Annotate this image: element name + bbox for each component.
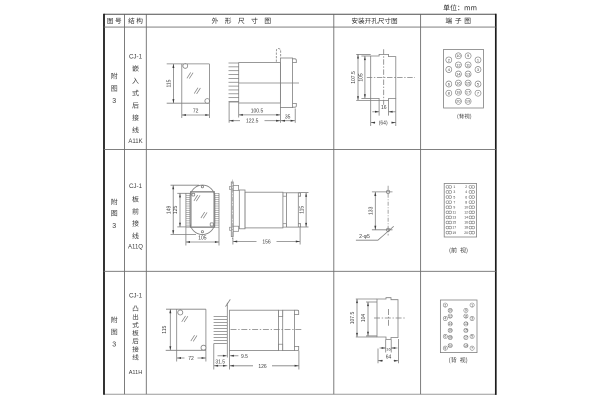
svg-text:20: 20 — [448, 344, 452, 348]
svg-text:12: 12 — [448, 314, 452, 318]
svg-text:3: 3 — [112, 98, 116, 105]
svg-text:72: 72 — [188, 356, 194, 362]
svg-text:12: 12 — [456, 62, 460, 67]
svg-text:13: 13 — [464, 322, 468, 326]
svg-text:13: 13 — [452, 216, 456, 220]
svg-text:3: 3 — [112, 341, 116, 348]
svg-text:CJ-1: CJ-1 — [129, 183, 143, 190]
svg-text:18: 18 — [448, 336, 452, 340]
svg-text:100.5: 100.5 — [251, 108, 264, 114]
svg-text:8: 8 — [465, 200, 467, 204]
svg-text:7: 7 — [477, 91, 479, 96]
svg-text:14: 14 — [448, 322, 452, 326]
svg-text:64: 64 — [386, 355, 392, 361]
svg-text:6: 6 — [448, 81, 450, 86]
svg-text:4: 4 — [444, 317, 446, 321]
svg-text:3: 3 — [112, 223, 116, 230]
svg-text:14: 14 — [464, 216, 468, 220]
svg-text:2: 2 — [465, 185, 467, 189]
svg-text:8: 8 — [448, 91, 450, 96]
svg-text:5: 5 — [477, 81, 479, 86]
svg-text:107.5: 107.5 — [350, 312, 356, 325]
svg-text:104: 104 — [361, 314, 367, 323]
svg-text:6: 6 — [444, 335, 446, 339]
svg-text:2: 2 — [448, 57, 450, 62]
svg-text:115: 115 — [167, 79, 173, 87]
svg-text:A11H: A11H — [129, 370, 143, 376]
svg-text:72: 72 — [193, 109, 199, 115]
svg-text:2: 2 — [444, 303, 446, 307]
svg-text:115: 115 — [162, 326, 168, 334]
svg-text:9: 9 — [453, 205, 455, 209]
svg-text:16: 16 — [386, 347, 391, 352]
svg-text:CJ-1: CJ-1 — [129, 292, 143, 299]
svg-text:156: 156 — [262, 240, 271, 246]
svg-text:1: 1 — [453, 185, 455, 189]
svg-text:A11Q: A11Q — [128, 244, 143, 250]
svg-text:115: 115 — [299, 206, 305, 214]
svg-text:105: 105 — [198, 235, 207, 241]
svg-text:17: 17 — [464, 336, 468, 340]
svg-text:1: 1 — [477, 57, 479, 62]
svg-text:3: 3 — [453, 190, 455, 194]
svg-text:15: 15 — [464, 329, 468, 333]
svg-text:122.5: 122.5 — [246, 119, 259, 125]
svg-text:6: 6 — [465, 195, 467, 199]
svg-text:A11K: A11K — [128, 139, 142, 145]
svg-text:11: 11 — [464, 314, 468, 318]
svg-text:16: 16 — [464, 221, 468, 225]
svg-text:107.5: 107.5 — [351, 71, 357, 84]
svg-text:105: 105 — [358, 73, 364, 82]
svg-text:31.5: 31.5 — [215, 360, 225, 366]
svg-text:3: 3 — [477, 67, 479, 72]
svg-text:17: 17 — [466, 90, 470, 95]
svg-text:12: 12 — [464, 211, 468, 215]
svg-text:16: 16 — [456, 80, 460, 85]
svg-text:16: 16 — [448, 329, 452, 333]
svg-text:19: 19 — [452, 231, 456, 235]
svg-text:5: 5 — [453, 195, 455, 199]
svg-text:CJ-1: CJ-1 — [129, 53, 143, 60]
svg-text:20: 20 — [464, 231, 468, 235]
svg-text:149: 149 — [166, 206, 172, 215]
svg-text:13: 13 — [466, 71, 470, 76]
svg-text:15: 15 — [452, 221, 456, 225]
svg-text:125: 125 — [173, 206, 179, 215]
svg-text:126: 126 — [258, 364, 267, 370]
svg-text:1: 1 — [471, 303, 473, 307]
svg-text:9.5: 9.5 — [241, 354, 248, 360]
svg-text:7: 7 — [453, 200, 455, 204]
svg-text:(64): (64) — [379, 121, 388, 127]
svg-text:7: 7 — [471, 346, 473, 350]
svg-text:10: 10 — [448, 309, 452, 313]
svg-text:10: 10 — [464, 205, 468, 209]
svg-text:2-φ5: 2-φ5 — [359, 234, 370, 240]
svg-text:18: 18 — [464, 226, 468, 230]
svg-text:11: 11 — [453, 211, 457, 215]
svg-text:133: 133 — [369, 206, 375, 215]
svg-text:9: 9 — [467, 53, 469, 58]
svg-text:17: 17 — [452, 226, 456, 230]
svg-text:15: 15 — [466, 80, 470, 85]
svg-text:19: 19 — [464, 344, 468, 348]
svg-text:16: 16 — [381, 105, 387, 111]
svg-text:19: 19 — [466, 99, 470, 104]
svg-text:4: 4 — [465, 190, 467, 194]
svg-text:5: 5 — [471, 335, 473, 339]
svg-text:3: 3 — [471, 317, 473, 321]
svg-text:35: 35 — [285, 114, 291, 120]
svg-text:18: 18 — [456, 90, 460, 95]
svg-text:11: 11 — [466, 62, 470, 67]
svg-text:8: 8 — [444, 346, 446, 350]
svg-text:9: 9 — [465, 309, 467, 313]
